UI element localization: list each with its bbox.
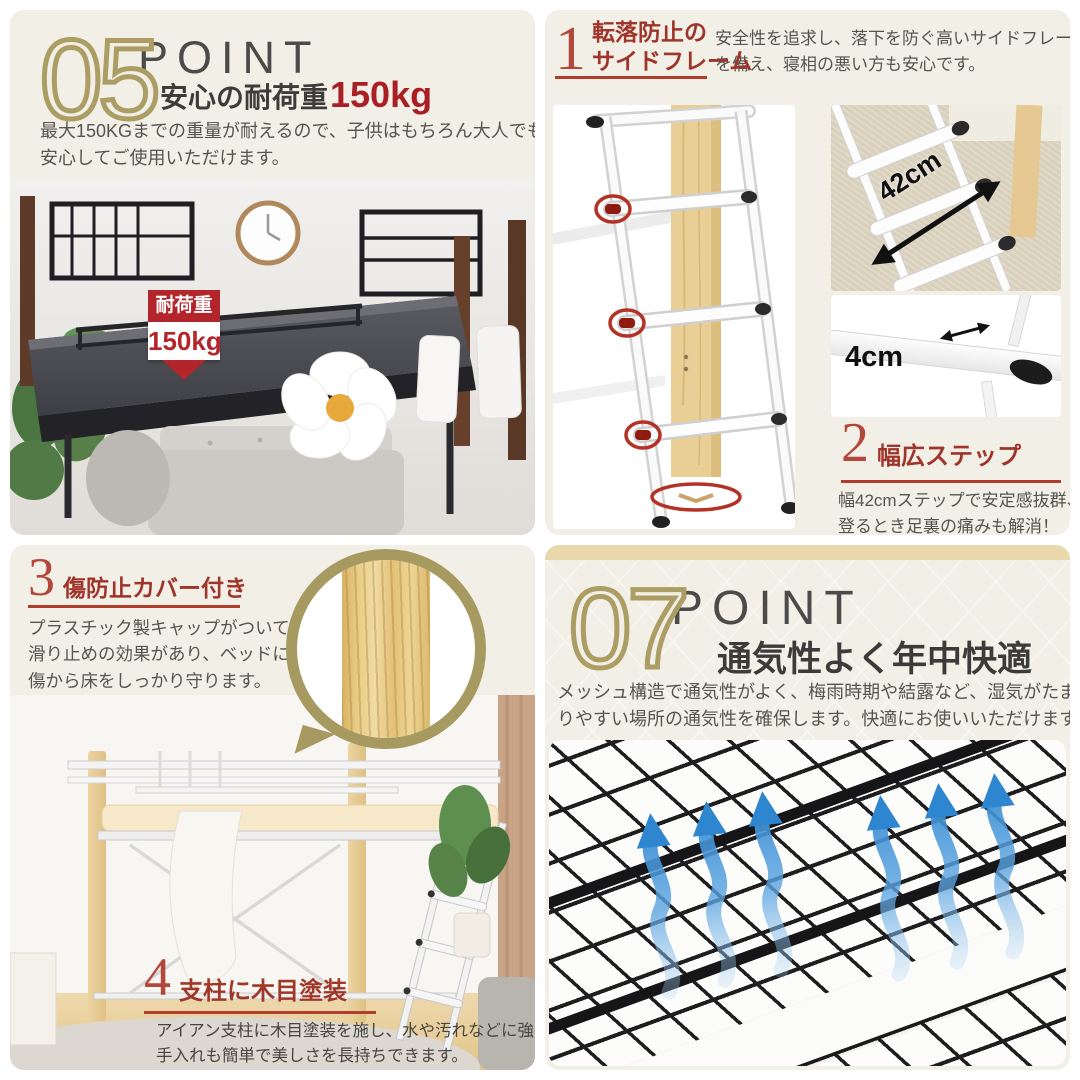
photo-step-width-42cm: 42cm <box>831 105 1061 291</box>
black-loft-bed-illustration <box>10 178 535 535</box>
panel-point-1-2: 1 転落防止の サイドフレーム 安全性を追求し、落下を防ぐ高いサイドフレーム を… <box>545 10 1070 535</box>
point-07-label: POINT <box>671 581 863 636</box>
point-3-number: 3 <box>28 553 55 603</box>
resize-arrow-icon <box>938 317 993 348</box>
step-width-illustration <box>831 105 1061 291</box>
title-main: 安心の耐荷重 <box>160 76 328 116</box>
load-capacity-badge: 耐荷重 150kg <box>148 290 220 380</box>
point-1-description: 安全性を追求し、落下を防ぐ高いサイドフレーム を備え、寝相の悪い方も安心です。 <box>715 26 1065 77</box>
arrow-down-icon <box>162 360 206 380</box>
panel-point-3-4: 3 傷防止カバー付き プラスチック製キャップがついていて、 滑り止めの効果があり… <box>10 545 535 1070</box>
point-1-number: 1 <box>555 22 586 78</box>
point-05-title: 安心の耐荷重 150kg <box>160 74 432 116</box>
point-3-header: 3 傷防止カバー付き <box>28 553 247 603</box>
point-07-title: 通気性よく年中快適 <box>717 631 1032 682</box>
point-3-title: 傷防止カバー付き <box>63 569 247 603</box>
point-4-underline <box>144 1011 376 1014</box>
photo-mesh-base <box>549 740 1066 1066</box>
point-2-description: 幅42cmステップで安定感抜群、 登るとき足裏の痛みも解消！ <box>838 488 1070 535</box>
point-4-header: 4 支柱に木目塗装 <box>144 953 347 1006</box>
ladder-leg-lower <box>981 380 998 417</box>
product-detail-image: 05 POINT 安心の耐荷重 150kg 最大150KGまでの重量が耐えるので… <box>0 0 1080 1080</box>
ladder-leg <box>1008 295 1036 347</box>
photo-black-loft-bed: 耐荷重 150kg <box>10 178 535 535</box>
wood-grain-closeup <box>286 549 486 749</box>
dimension-4cm: 4cm <box>845 341 903 374</box>
point-4-number: 4 <box>144 953 171 1006</box>
point-2-title: 幅広ステップ <box>877 436 1021 471</box>
ladder-illustration <box>553 105 795 529</box>
point-07-number: 07 <box>569 573 686 685</box>
panel-point-07: 07 POINT 通気性よく年中快適 メッシュ構造で通気性がよく、梅雨時期や結露… <box>545 545 1070 1070</box>
point-2-header: 2 幅広ステップ <box>841 418 1021 471</box>
point-4-description: アイアン支柱に木目塗装を施し、水や汚れなどに強く、 手入れも簡単で美しさを長持ち… <box>156 1019 535 1069</box>
point-07-description: メッシュ構造で通気性がよく、梅雨時期や結露など、湿気がたま りやすい場所の通気性… <box>557 679 1070 733</box>
photo-ladder-joints <box>553 105 795 529</box>
point-3-underline <box>28 605 240 608</box>
point-4-title: 支柱に木目塗装 <box>179 971 347 1006</box>
airflow-arrow-icons <box>549 740 1066 1066</box>
photo-tube-4cm: 4cm <box>831 295 1061 417</box>
tan-accent-strip <box>545 545 1070 560</box>
title-accent-150kg: 150kg <box>330 74 432 116</box>
point-2-underline <box>841 480 1061 483</box>
point-2-number: 2 <box>841 418 869 468</box>
badge-value: 150kg <box>148 322 220 360</box>
point-05-number: 05 <box>40 24 157 136</box>
badge-label: 耐荷重 <box>148 290 220 322</box>
panel-point-05: 05 POINT 安心の耐荷重 150kg 最大150KGまでの重量が耐えるので… <box>10 10 535 535</box>
point-1-title: 転落防止の サイドフレーム <box>592 18 752 78</box>
point-1-header: 1 転落防止の サイドフレーム <box>555 18 752 78</box>
wood-grain-post <box>342 560 430 738</box>
